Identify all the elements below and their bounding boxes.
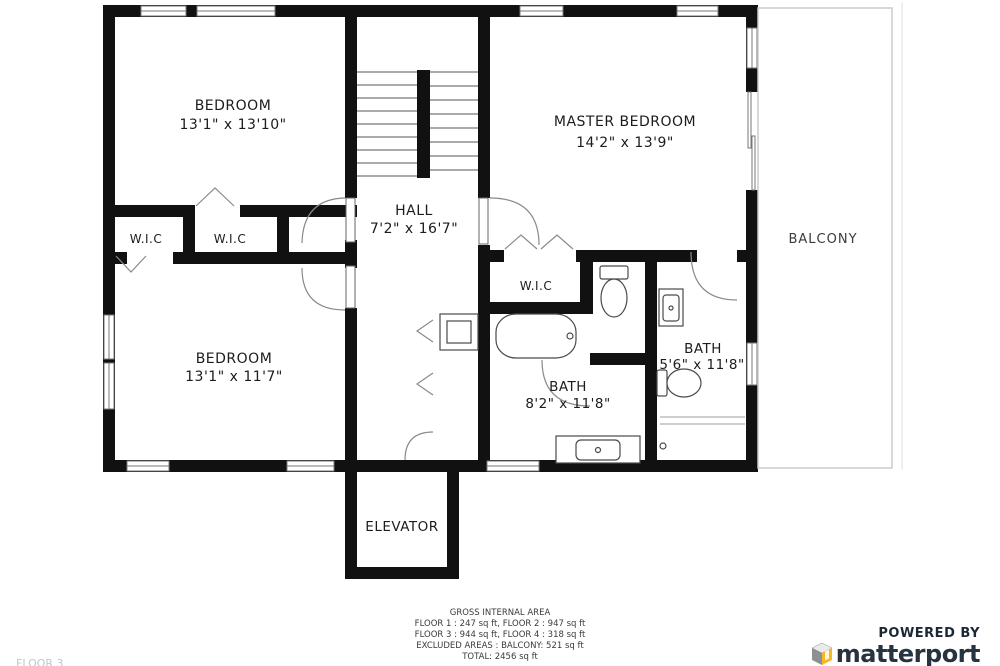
matterport-cube-icon — [812, 643, 832, 665]
wall-elevator-right — [447, 472, 459, 578]
wall-bath2-left — [645, 250, 657, 472]
bath1-dims: 8'2" x 11'8" — [525, 396, 610, 412]
hall-dims: 7'2" x 16'7" — [370, 221, 458, 237]
floor-plan-page: BEDROOM 13'1" x 13'10" MASTER BEDROOM 14… — [0, 0, 1000, 666]
wall-wic3-bottom — [478, 302, 593, 314]
bifold-door-hall-closet-b — [417, 373, 433, 395]
wall-elevator-left — [345, 472, 357, 578]
bath2-name: BATH — [684, 341, 722, 357]
stair-divider — [417, 70, 430, 178]
bedroom2-name: BEDROOM — [196, 351, 273, 367]
master-bedroom-dims: 14'2" x 13'9" — [576, 135, 674, 151]
door-leaf-master — [479, 198, 488, 244]
wall-wic-bottom-b — [173, 252, 357, 264]
window — [487, 461, 539, 471]
bifold-door-wic3-a — [505, 235, 537, 249]
staircase — [357, 70, 478, 178]
wall-hall-left-lower — [345, 308, 357, 472]
window — [747, 28, 757, 68]
bath1-name: BATH — [549, 379, 587, 395]
bifold-door-hall-closet-a — [417, 320, 433, 342]
wall-master-bottom-c — [737, 250, 758, 262]
window — [141, 6, 186, 16]
wic3-label: W.I.C — [520, 279, 553, 293]
floor-plan-drawing: BEDROOM 13'1" x 13'10" MASTER BEDROOM 14… — [0, 0, 1000, 666]
area-summary-line: EXCLUDED AREAS : BALCONY: 521 sq ft — [415, 641, 586, 652]
wall-toilet-nook-bottom — [590, 353, 645, 365]
hall-name: HALL — [395, 203, 433, 219]
door-arc-hall — [405, 432, 433, 460]
outer-wall-right — [746, 5, 758, 472]
window — [197, 6, 275, 16]
shower — [660, 417, 745, 449]
door-leaf-bedroom2 — [346, 266, 355, 308]
sink-vanity — [659, 289, 683, 326]
windows — [104, 6, 758, 471]
area-summary-line: TOTAL: 2456 sq ft — [415, 652, 586, 663]
wall-wic-bottom-a — [103, 252, 127, 264]
wall-hall-right-lower — [478, 245, 490, 472]
bedroom2-dims: 13'1" x 11'7" — [185, 369, 283, 385]
outer-wall-bottom — [103, 460, 758, 472]
area-summary-line: FLOOR 1 : 247 sq ft, FLOOR 2 : 947 sq ft — [415, 619, 586, 630]
window — [104, 315, 114, 359]
wic1-label: W.I.C — [130, 232, 163, 246]
toilet — [657, 369, 701, 397]
window — [104, 363, 114, 409]
bath2-dims: 5'6" x 11'8" — [659, 357, 744, 373]
window — [520, 6, 563, 16]
floor-label: FLOOR 3 — [16, 657, 64, 666]
wall-elevator-bottom — [345, 567, 459, 579]
wic2-label: W.I.C — [214, 232, 247, 246]
window — [127, 461, 169, 471]
bedroom1-dims: 13'1" x 13'10" — [179, 117, 286, 133]
bifold-door-wic3-b — [541, 235, 573, 249]
window — [677, 6, 718, 16]
door-arc-bedroom1 — [302, 198, 345, 243]
wall-hall-left-upper — [345, 5, 357, 198]
door-arc-master — [490, 198, 539, 245]
bifold-door-wic2 — [196, 188, 234, 206]
toilet — [600, 266, 628, 317]
door-arc-bedroom2 — [302, 268, 345, 310]
wall-wic-top-b — [240, 205, 357, 217]
window — [287, 461, 334, 471]
hall-closet — [440, 314, 478, 350]
bathtub — [496, 314, 576, 358]
area-summary-title: GROSS INTERNAL AREA — [415, 608, 586, 619]
wall-hall-right-upper — [478, 5, 490, 198]
sliding-door-balcony — [746, 92, 758, 190]
balcony-label: BALCONY — [788, 232, 857, 247]
door-leaf-bedroom1 — [346, 198, 355, 242]
area-summary: GROSS INTERNAL AREA FLOOR 1 : 247 sq ft,… — [415, 608, 586, 662]
master-bedroom-name: MASTER BEDROOM — [554, 114, 696, 130]
matterport-wordmark: matterport — [836, 642, 980, 666]
wall-wic-top-a — [103, 205, 185, 217]
elevator-label: ELEVATOR — [365, 519, 438, 535]
bedroom1-name: BEDROOM — [195, 98, 272, 114]
matterport-branding: POWERED BY matterport — [812, 626, 980, 666]
wall-master-bottom-a — [478, 250, 504, 262]
powered-by-text: POWERED BY — [812, 626, 980, 641]
area-summary-line: FLOOR 3 : 944 sq ft, FLOOR 4 : 318 sq ft — [415, 630, 586, 641]
wall-master-bottom-b — [576, 250, 697, 262]
sink-vanity — [556, 436, 640, 463]
window — [747, 343, 757, 385]
door-arc-bath2 — [691, 252, 737, 300]
